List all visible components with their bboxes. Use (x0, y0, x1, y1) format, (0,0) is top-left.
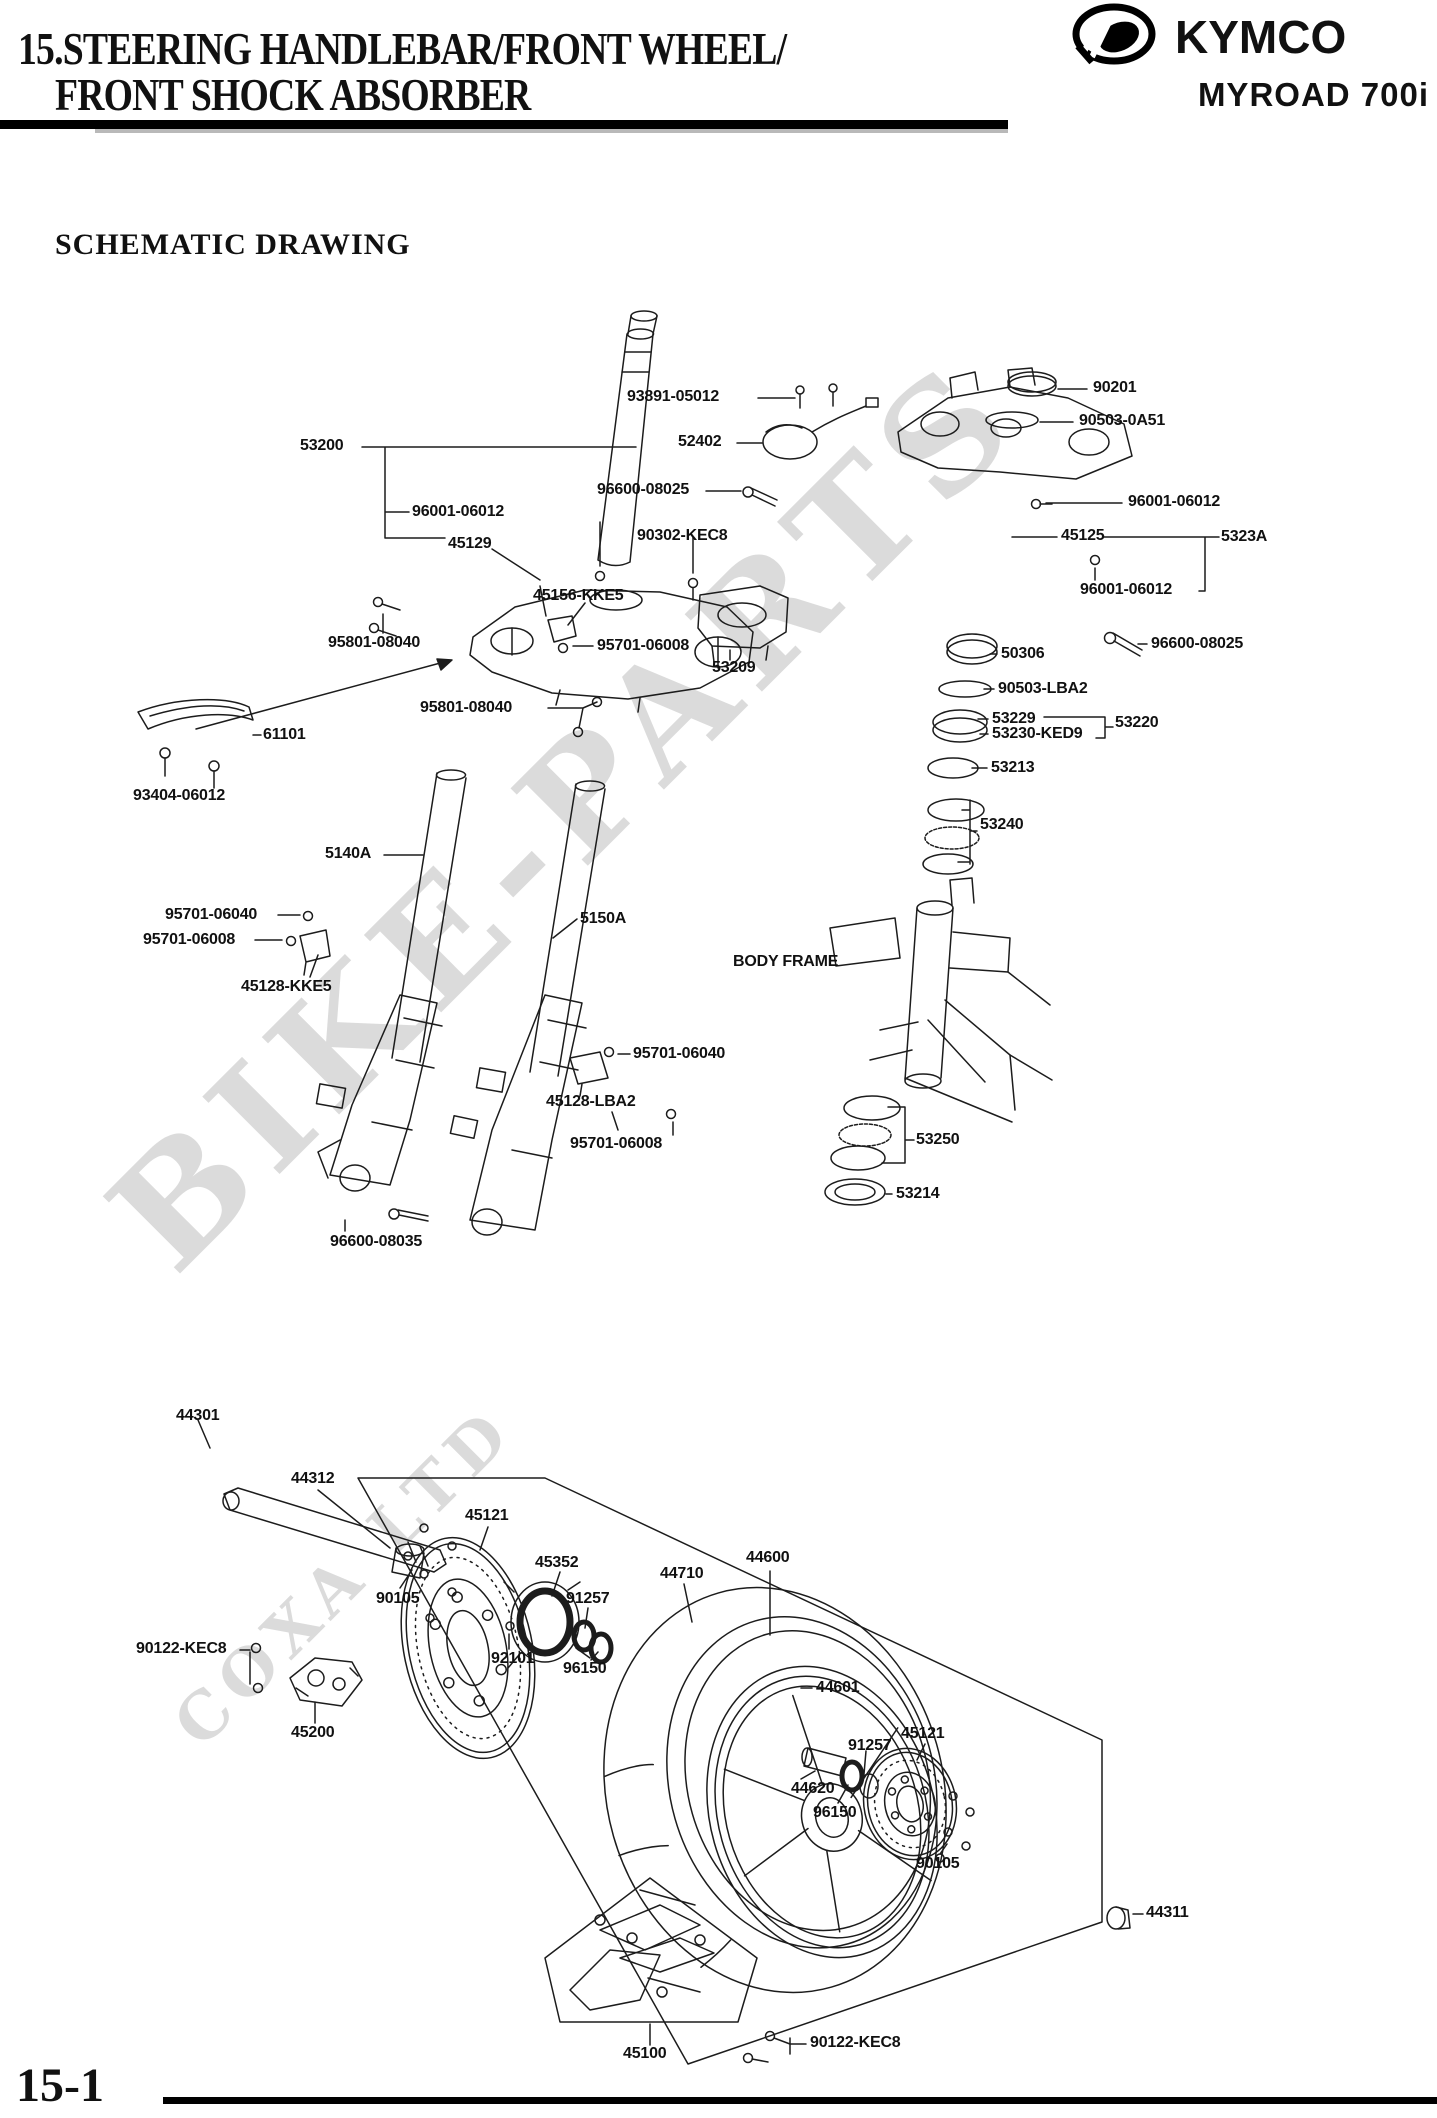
part-label: 45352 (535, 1555, 579, 1571)
part-label: 95801-08040 (420, 700, 512, 716)
labels-layer: 5320096001-060124512993891-0501252402966… (0, 0, 1437, 2118)
part-label: 93891-05012 (627, 389, 719, 405)
part-label: 53220 (1115, 715, 1159, 731)
part-label: 52402 (678, 434, 722, 450)
part-label: 45125 (1061, 528, 1105, 544)
part-label: 96600-08025 (597, 482, 689, 498)
part-label: 5140A (325, 846, 371, 862)
part-label: 91257 (848, 1738, 892, 1754)
part-label: 95701-06040 (633, 1046, 725, 1062)
part-label: 53214 (896, 1186, 940, 1202)
part-label: 45128-KKE5 (241, 979, 332, 995)
part-label: 53200 (300, 438, 344, 454)
part-label: 92101 (491, 1651, 535, 1667)
part-label: 44301 (176, 1408, 220, 1424)
part-label: 53230-KED9 (992, 726, 1083, 742)
part-label: 95701-06008 (570, 1136, 662, 1152)
part-label: 44312 (291, 1471, 335, 1487)
part-label: 95801-08040 (328, 635, 420, 651)
part-label: 45200 (291, 1725, 335, 1741)
part-label: 96600-08035 (330, 1234, 422, 1250)
part-label: 90122-KEC8 (136, 1641, 227, 1657)
part-label: 44600 (746, 1550, 790, 1566)
part-label: 95701-06040 (165, 907, 257, 923)
part-label: 45128-LBA2 (546, 1094, 636, 1110)
part-label: 96001-06012 (1080, 582, 1172, 598)
part-label: 96001-06012 (1128, 494, 1220, 510)
part-label: 90105 (376, 1591, 420, 1607)
part-label: 50306 (1001, 646, 1045, 662)
part-label: 53209 (712, 660, 756, 676)
part-label: 90503-0A51 (1079, 413, 1165, 429)
part-label: 44620 (791, 1781, 835, 1797)
part-label: 90201 (1093, 380, 1137, 396)
part-label: 45156-KKE5 (533, 588, 624, 604)
part-label: 96001-06012 (412, 504, 504, 520)
part-label: 93404-06012 (133, 788, 225, 804)
part-label: 5150A (580, 911, 626, 927)
part-label: BODY FRAME (733, 954, 838, 970)
part-label: 95701-06008 (597, 638, 689, 654)
part-label: 44710 (660, 1566, 704, 1582)
part-label: 53213 (991, 760, 1035, 776)
part-label: 95701-06008 (143, 932, 235, 948)
part-label: 96150 (813, 1805, 857, 1821)
part-label: 91257 (566, 1591, 610, 1607)
part-label: 44311 (1146, 1905, 1189, 1921)
part-label: 53240 (980, 817, 1024, 833)
part-label: 90503-LBA2 (998, 681, 1088, 697)
part-label: 96600-08025 (1151, 636, 1243, 652)
part-label: 44601 (816, 1680, 860, 1696)
part-label: 90302-KEC8 (637, 528, 728, 544)
part-label: 45121 (465, 1508, 509, 1524)
part-label: 61101 (263, 727, 306, 743)
part-label: 90105 (916, 1856, 960, 1872)
part-label: 96150 (563, 1661, 607, 1677)
part-label: 53250 (916, 1132, 960, 1148)
part-label: 45129 (448, 536, 492, 552)
catalog-page: BIKE-PARTS COXA LTD 15.STEERING HANDLEBA… (0, 0, 1437, 2118)
part-label: 90122-KEC8 (810, 2035, 901, 2051)
part-label: 5323A (1221, 529, 1267, 545)
part-label: 45100 (623, 2046, 667, 2062)
part-label: 45121 (901, 1726, 945, 1742)
